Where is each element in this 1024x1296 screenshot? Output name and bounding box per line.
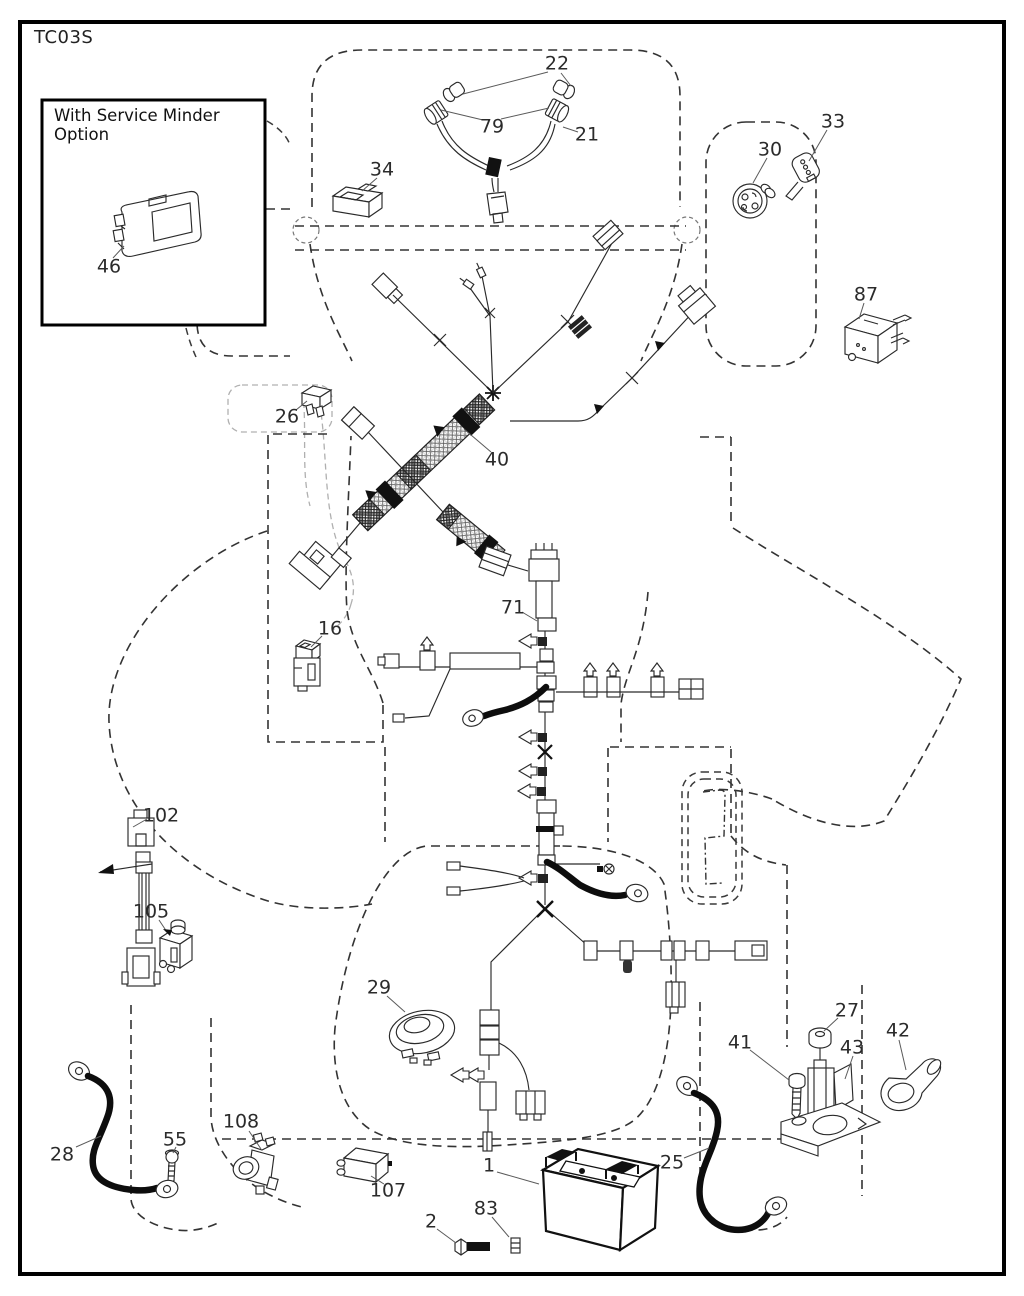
drawing-code: TC03S (34, 27, 93, 48)
connector-16 (294, 640, 320, 691)
headlight-harness (422, 78, 577, 223)
part-label-41: 41 (728, 1032, 752, 1054)
part-label-30: 30 (758, 139, 782, 161)
relay-87 (845, 314, 911, 363)
part-label-28: 28 (50, 1144, 74, 1166)
part-label-26: 26 (275, 406, 299, 428)
main-harness-loom (289, 220, 715, 592)
part-label-29: 29 (367, 977, 391, 999)
ignition-switch (733, 182, 777, 218)
part-label-46: 46 (97, 256, 121, 278)
part-label-21: 21 (575, 124, 599, 146)
part-label-16: 16 (318, 618, 342, 640)
part-label-87: 87 (854, 284, 878, 306)
part-label-1: 1 (483, 1155, 495, 1177)
battery (543, 1149, 658, 1250)
part-label-40: 40 (485, 449, 509, 471)
part-label-42: 42 (886, 1020, 910, 1042)
part-label-43: 43 (840, 1037, 864, 1059)
part-label-83: 83 (474, 1198, 498, 1220)
fuse-holder-102 (98, 810, 160, 986)
part-label-107: 107 (370, 1180, 406, 1202)
part-label-27: 27 (835, 1000, 859, 1022)
part-label-108: 108 (223, 1111, 259, 1133)
inset-title: With Service Minder Option (54, 106, 262, 144)
headlight-switch (333, 184, 382, 217)
hourmeter-107 (337, 1148, 392, 1182)
horn-29 (385, 1005, 458, 1065)
bulb-socket-left (422, 100, 449, 126)
part-label-79: 79 (480, 116, 504, 138)
diagram-artwork: 4622792134303387264016711021052910855281… (0, 0, 1024, 1296)
part-label-33: 33 (821, 111, 845, 133)
part-label-102: 102 (143, 805, 179, 827)
part-label-55: 55 (163, 1129, 187, 1151)
bolt-2 (455, 1239, 490, 1255)
bolt-41 (789, 1074, 805, 1120)
part-label-71: 71 (501, 597, 525, 619)
battery-cable-25 (673, 1073, 789, 1230)
part-label-34: 34 (370, 159, 394, 181)
spacer-83 (511, 1238, 520, 1253)
part-label-105: 105 (133, 901, 169, 923)
loom-end-connector (289, 530, 351, 592)
bulb-socket-right (545, 98, 571, 123)
wiring-diagram-page: 4622792134303387264016711021052910855281… (0, 0, 1024, 1296)
part-label-22: 22 (545, 53, 569, 75)
part-label-2: 2 (425, 1211, 437, 1233)
terminal-boot-42 (881, 1057, 943, 1110)
part-label-25: 25 (660, 1152, 684, 1174)
